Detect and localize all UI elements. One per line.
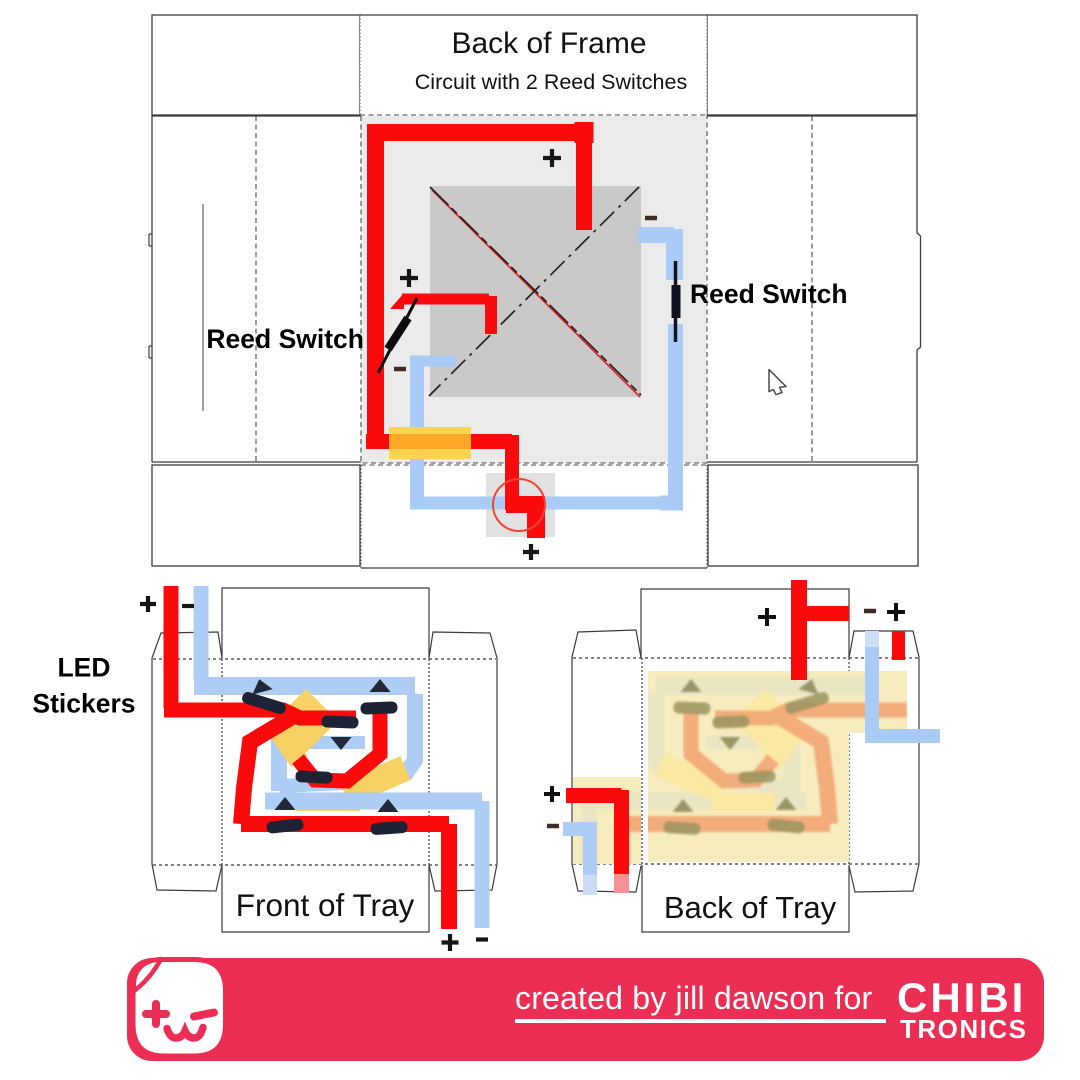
svg-text:Reed Switch: Reed Switch: [206, 324, 364, 354]
svg-text:Back of Frame: Back of Frame: [451, 27, 646, 60]
svg-text:Stickers: Stickers: [32, 689, 135, 719]
svg-text:LED: LED: [58, 653, 111, 683]
svg-text:Front of Tray: Front of Tray: [236, 887, 415, 923]
svg-text:Back of Tray: Back of Tray: [664, 890, 837, 925]
svg-text:Circuit with 2 Reed Switches: Circuit with 2 Reed Switches: [415, 70, 687, 94]
svg-text:TRONICS: TRONICS: [900, 1014, 1028, 1044]
svg-text:created by jill dawson for: created by jill dawson for: [515, 980, 873, 1016]
svg-text:Reed Switch: Reed Switch: [690, 279, 848, 309]
